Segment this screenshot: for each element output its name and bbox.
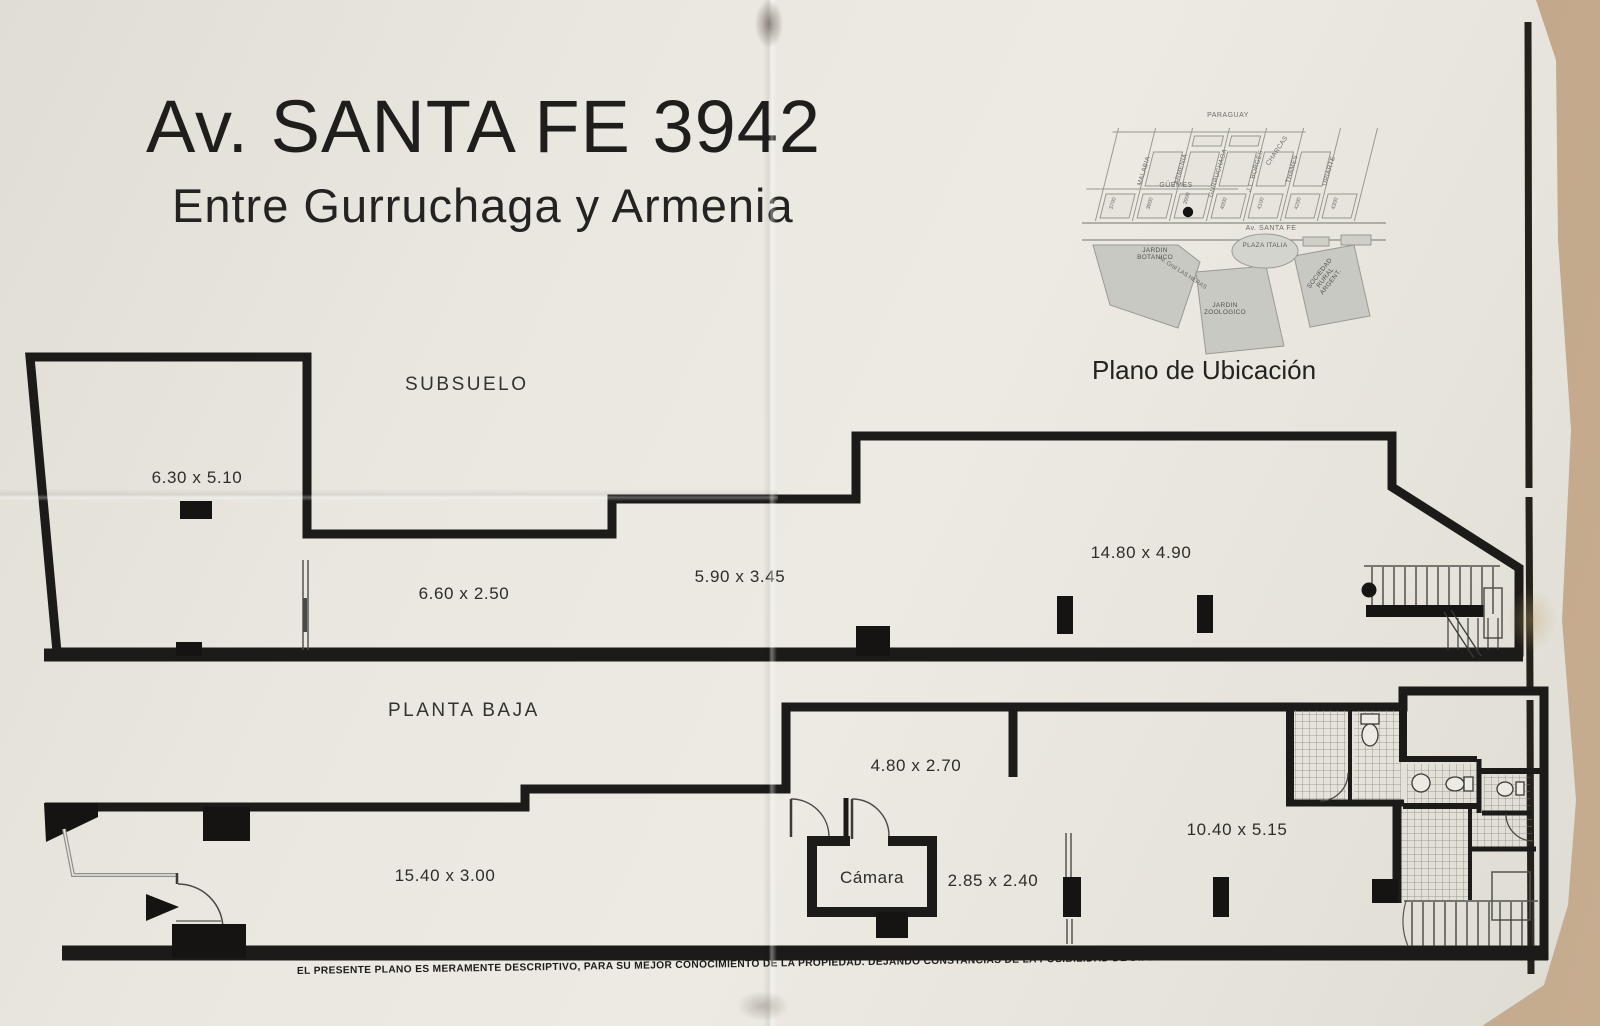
door-swing-arc bbox=[852, 799, 889, 836]
floor-plan-drawings bbox=[0, 0, 1600, 1026]
stair-stringer bbox=[1366, 605, 1484, 617]
dim-label: 4.80 x 2.70 bbox=[852, 756, 980, 776]
planta-baja-label: PLANTA BAJA bbox=[388, 700, 540, 722]
dim-label: 14.80 x 4.90 bbox=[1074, 543, 1208, 563]
fixture-block bbox=[180, 501, 212, 519]
door-swing-arc bbox=[791, 799, 829, 837]
wall-corner-block bbox=[1372, 879, 1398, 903]
entrance bbox=[44, 803, 250, 958]
dim-label: 6.30 x 5.10 bbox=[133, 468, 261, 488]
entrance-bottom-block bbox=[172, 924, 246, 958]
interior-doors bbox=[791, 798, 889, 840]
subsuelo-staircase bbox=[1362, 566, 1503, 658]
entrance-left-block bbox=[44, 803, 98, 842]
camara-room bbox=[812, 841, 932, 938]
column bbox=[1197, 595, 1213, 633]
planta-baja-staircase bbox=[1403, 901, 1538, 946]
dim-label: 2.85 x 2.40 bbox=[930, 871, 1056, 891]
dim-label: 6.60 x 2.50 bbox=[400, 584, 528, 604]
column bbox=[1213, 877, 1229, 917]
sink bbox=[1412, 774, 1430, 792]
camara-label: Cámara bbox=[828, 868, 916, 888]
column bbox=[856, 626, 890, 656]
subsuelo-label: SUBSUELO bbox=[405, 374, 528, 396]
pillar bbox=[203, 807, 250, 841]
planta-baja-plan bbox=[44, 691, 1548, 960]
dim-label: 10.40 x 5.15 bbox=[1170, 820, 1304, 840]
toilet bbox=[1497, 782, 1513, 796]
thin-partition bbox=[303, 560, 308, 650]
column bbox=[176, 642, 202, 656]
toilet bbox=[1446, 777, 1464, 791]
photographed-floor-plan: Av. SANTA FE 3942 Entre Gurruchaga y Arm… bbox=[0, 0, 1600, 1026]
toilet-tank bbox=[1361, 714, 1379, 724]
paper-fold-crease-vertical bbox=[763, 0, 777, 1026]
toilet bbox=[1362, 724, 1378, 746]
stair-newel-post bbox=[1362, 583, 1377, 598]
door-swing-arc bbox=[178, 884, 223, 929]
dim-label: 15.40 x 3.00 bbox=[378, 866, 512, 886]
fold-smudge bbox=[728, 986, 798, 1026]
toilet-tank bbox=[1464, 777, 1473, 791]
fold-smudge bbox=[750, 0, 788, 56]
entrance-direction-arrow bbox=[146, 894, 179, 921]
toilet-tank bbox=[1516, 782, 1524, 795]
column bbox=[1057, 596, 1073, 634]
mid-partition-column bbox=[1063, 833, 1081, 944]
paper-fold-crease-horizontal bbox=[0, 489, 778, 501]
dim-label: 5.90 x 3.45 bbox=[676, 567, 804, 587]
paper-stain bbox=[1500, 580, 1564, 660]
bathrooms bbox=[1286, 703, 1542, 920]
